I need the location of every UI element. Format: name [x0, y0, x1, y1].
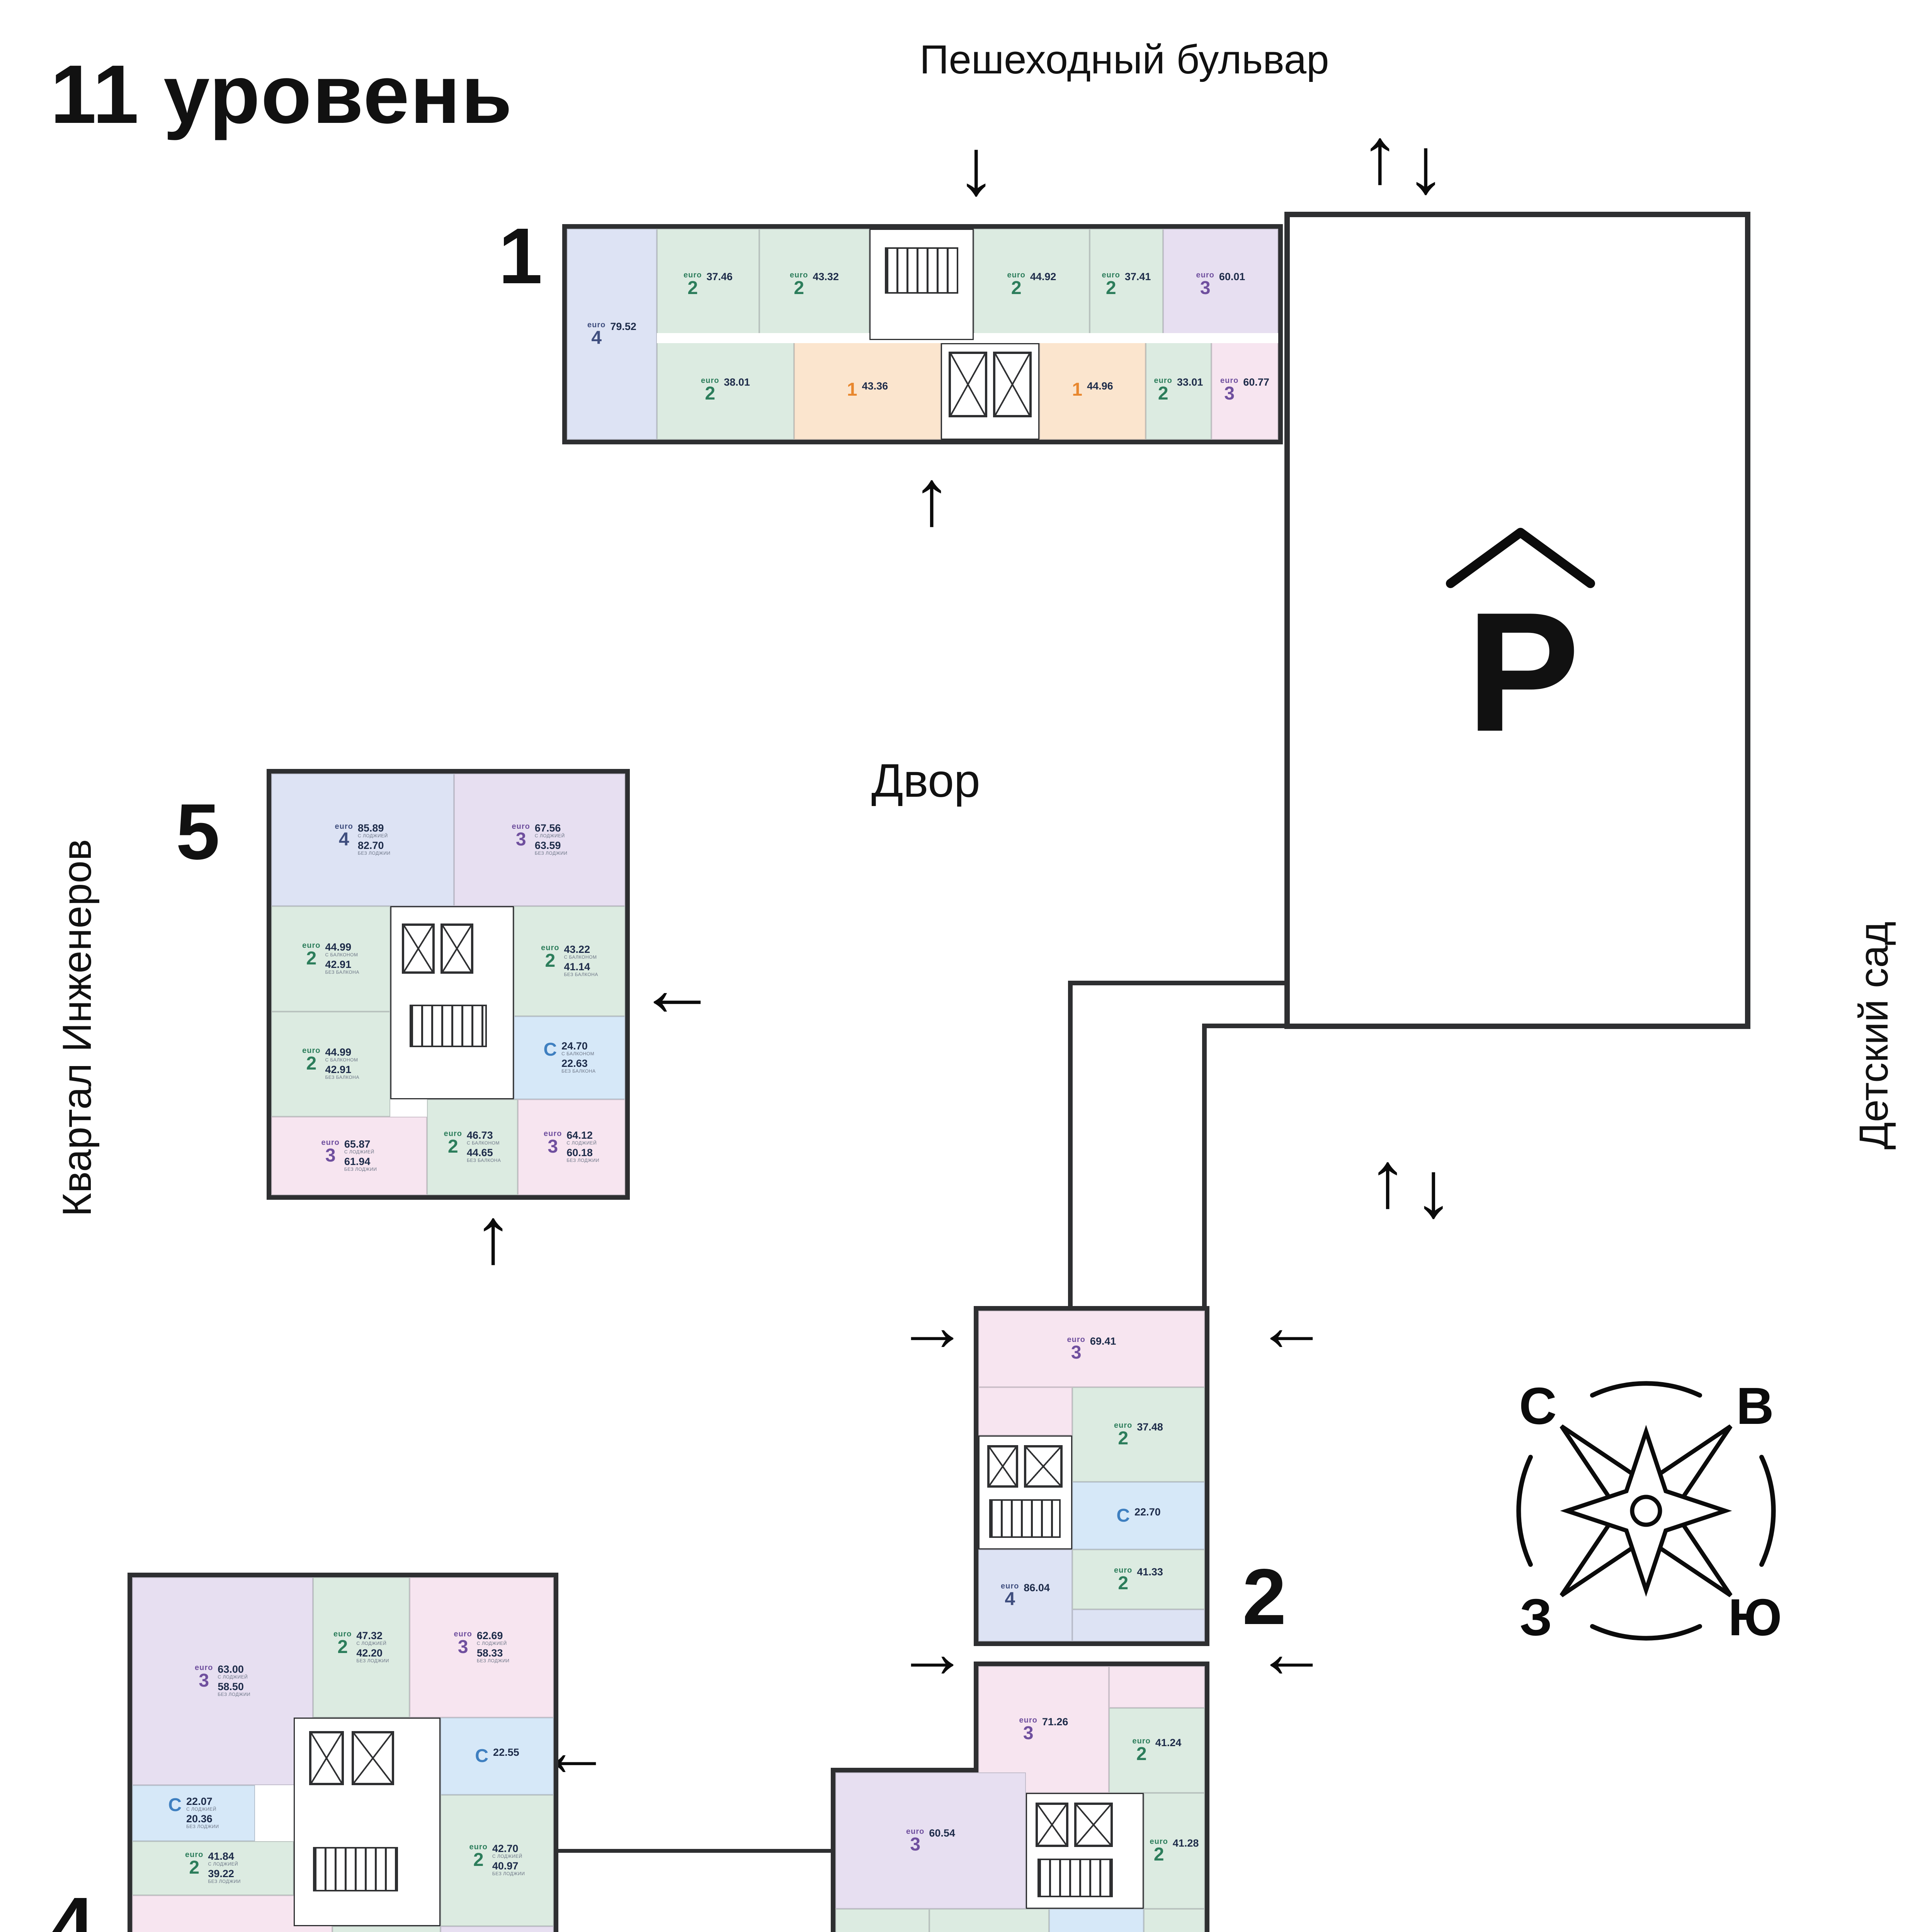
parking-symbol: P — [1466, 587, 1580, 757]
apartment-unit[interactable]: euro2 41.28 — [1144, 1793, 1205, 1909]
elevator-icon — [309, 1731, 344, 1785]
apartment-unit[interactable]: euro3 63.00С ЛОДЖИЕЙ58.50БЕЗ ЛОДЖИИ — [132, 1577, 313, 1785]
apartment-unit[interactable]: euro2 38.01 — [657, 340, 794, 440]
entry-arrow-up-b5-icon: ↑ — [473, 1196, 513, 1275]
apartment-unit[interactable]: euro3 69.41 — [978, 1311, 1205, 1387]
apartment-unit[interactable]: euro3 58.33С ЛОДЖИЕЙ55.22БЕЗ ЛОДЖИИ — [440, 1926, 554, 1932]
apartment-unit[interactable]: С 22.07С ЛОДЖИЕЙ20.36БЕЗ ЛОДЖИИ — [132, 1785, 255, 1841]
elevator-icon — [1024, 1445, 1063, 1488]
apartment-unit[interactable]: 1 44.96 — [1039, 340, 1146, 440]
apartment-unit[interactable]: euro2 43.22С БАЛКОНОМ41.14БЕЗ БАЛКОНА — [514, 906, 625, 1016]
elevator-icon — [949, 352, 987, 417]
apartment-unit[interactable]: euro3 64.12С ЛОДЖИЕЙ60.18БЕЗ ЛОДЖИИ — [518, 1099, 625, 1195]
compass-south-label: Ю — [1728, 1588, 1782, 1646]
entry-arrow-up-icon: ↑ — [912, 458, 952, 537]
elevator-icon — [987, 1445, 1018, 1488]
apartment-unit[interactable]: euro2 41.84С ЛОДЖИЕЙ39.22БЕЗ ЛОДЖИИ — [132, 1841, 294, 1895]
apartment-unit[interactable]: euro2 41.24 — [1109, 1708, 1205, 1793]
apartment-unit[interactable]: euro2 47.32С ЛОДЖИЕЙ42.20БЕЗ ЛОДЖИИ — [313, 1577, 410, 1718]
apartment-unit[interactable]: 1 43.36 — [794, 340, 941, 440]
apartment-unit[interactable]: С 24.70С БАЛКОНОМ22.63БЕЗ БАЛКОНА — [514, 1016, 625, 1099]
stairs — [885, 247, 958, 294]
elevator-icon — [402, 923, 435, 974]
building-5-number: 5 — [176, 792, 220, 871]
courtyard-label: Двор — [871, 753, 980, 808]
wall-line — [558, 1849, 835, 1853]
compass-rose: С В З Ю — [1492, 1356, 1801, 1665]
stairs — [410, 1005, 487, 1047]
apartment-unit[interactable]: euro3 60.77 — [1211, 340, 1278, 440]
apartment-unit — [978, 1387, 1072, 1435]
apartment-unit[interactable]: euro2 44.92 — [974, 229, 1090, 340]
apartment-unit[interactable]: euro2 41.33 — [1072, 1549, 1205, 1609]
apartment-unit[interactable]: euro2 37.46 — [657, 229, 759, 340]
apartment-unit — [1072, 1609, 1205, 1641]
compass-north-label: С — [1519, 1377, 1557, 1435]
apartment-unit[interactable]: euro2 43.32 — [759, 229, 869, 340]
parking-arrows-top-icon: ↑↓ — [1360, 116, 1446, 205]
street-label-right: Детский сад — [1851, 819, 1897, 1252]
apartment-unit[interactable]: euro2 42.29С ЛОДЖИЕЙ39.17БЕЗ ЛОДЖИИ — [332, 1926, 440, 1932]
apartment-unit[interactable]: euro2 46.73С БАЛКОНОМ44.65БЕЗ БАЛКОНА — [427, 1099, 518, 1195]
entry-arrow-down-icon: ↓ — [956, 128, 996, 207]
building-2-number: 2 — [1242, 1557, 1286, 1636]
elevator-icon — [440, 923, 473, 974]
apartment-unit[interactable]: euro3 60.54 — [835, 1772, 1026, 1909]
apartment-unit[interactable]: С 22.70 — [1072, 1482, 1205, 1549]
building-4-number: 4 — [50, 1886, 94, 1932]
wall-line — [1068, 981, 1289, 985]
apartment-unit[interactable]: С 29.13 — [1049, 1909, 1144, 1932]
apartment-unit — [1109, 1666, 1205, 1708]
elevator-icon — [1074, 1803, 1113, 1847]
stairs — [1037, 1859, 1113, 1897]
compass-east-label: В — [1736, 1377, 1774, 1435]
apartment-unit[interactable]: С 22.55 — [440, 1718, 554, 1795]
wall-line — [1068, 981, 1073, 1309]
apartment-unit[interactable]: euro2 50.30С ЛОДЖИЕЙ47.79БЕЗ ЛОДЖИИ — [835, 1909, 929, 1932]
stairs — [313, 1847, 398, 1891]
parking-arrows-bottom-icon: ↑↓ — [1368, 1140, 1453, 1229]
street-label-left: Квартал Инженеров — [54, 773, 100, 1283]
entry-arrow-left-b5-icon: ← — [638, 949, 717, 1028]
compass-west-label: З — [1520, 1588, 1553, 1646]
apartment-unit[interactable]: euro2 37.48 — [1072, 1387, 1205, 1482]
elevator-icon — [993, 352, 1032, 417]
apartment-unit[interactable]: euro2 44.99С БАЛКОНОМ42.91БЕЗ БАЛКОНА — [271, 1012, 390, 1117]
apartment-unit[interactable]: euro2 33.01 — [1146, 340, 1211, 440]
site-plan-page: 11 уровень Пешеходный бульвар Квартал Ин… — [0, 0, 1932, 1932]
wall-line — [1202, 1024, 1290, 1028]
apartment-unit[interactable]: euro2 41.28 — [929, 1909, 1049, 1932]
elevator-icon — [1036, 1803, 1068, 1847]
street-label-top: Пешеходный бульвар — [920, 37, 1329, 83]
elevator-icon — [352, 1731, 394, 1785]
apartment-unit[interactable]: euro2 44.99С БАЛКОНОМ42.91БЕЗ БАЛКОНА — [271, 906, 390, 1012]
apartment-unit[interactable]: euro2 37.41 — [1090, 229, 1163, 340]
apartment-unit[interactable]: euro3 65.87С ЛОДЖИЕЙ61.94БЕЗ ЛОДЖИИ — [271, 1117, 427, 1195]
entry-arrow-right-b2top-icon: → — [896, 1291, 968, 1362]
entry-arrow-right-b3top-icon: → — [896, 1617, 968, 1689]
apartment-unit[interactable]: euro4 86.04 — [978, 1549, 1072, 1641]
wall-line — [1202, 1024, 1207, 1308]
entry-arrow-left-b2top-icon: ← — [1256, 1291, 1327, 1362]
apartment-unit[interactable]: euro2 42.70С ЛОДЖИЕЙ40.97БЕЗ ЛОДЖИИ — [440, 1795, 554, 1926]
apartment-unit[interactable]: euro3 62.69С ЛОДЖИЕЙ58.33БЕЗ ЛОДЖИИ — [410, 1577, 554, 1718]
page-title: 11 уровень — [50, 46, 513, 142]
building-1-number: 1 — [498, 216, 543, 296]
apartment-unit[interactable]: euro4 79.52 — [567, 229, 657, 440]
apartment-unit[interactable]: euro2 51.02 — [1144, 1909, 1205, 1932]
apartment-unit[interactable]: euro3 60.01 — [1163, 229, 1278, 340]
apartment-unit[interactable]: euro4 85.89С ЛОДЖИЕЙ82.70БЕЗ ЛОДЖИИ — [271, 774, 454, 906]
apartment-unit[interactable]: euro3 67.56С ЛОДЖИЕЙ63.59БЕЗ ЛОДЖИИ — [454, 774, 625, 906]
stairs — [989, 1499, 1061, 1538]
